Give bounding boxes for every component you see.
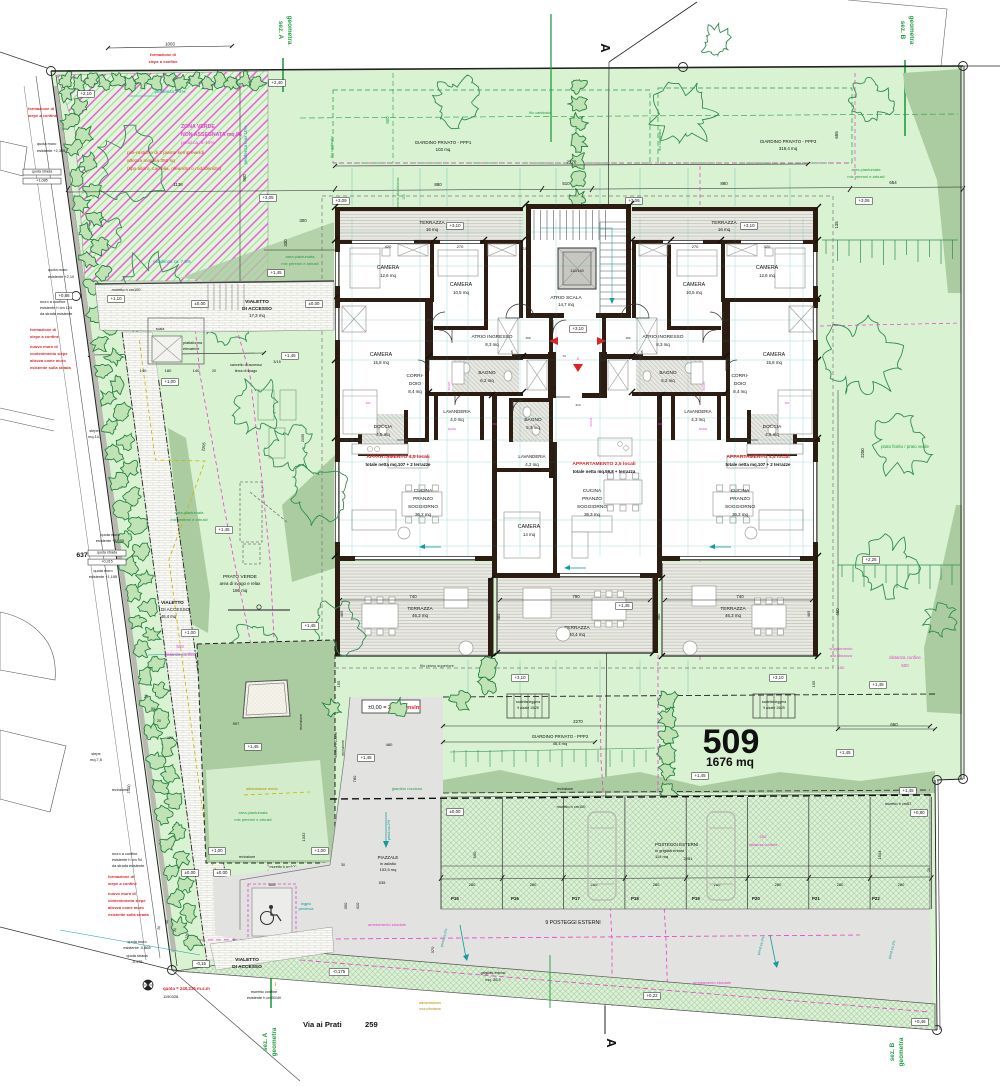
svg-text:535: 535	[379, 880, 386, 885]
svg-text:CUCINA: CUCINA	[731, 488, 750, 494]
svg-text:+0,86: +0,86	[58, 293, 70, 298]
svg-text:filo cantinato: filo cantinato	[529, 111, 551, 115]
svg-text:CORRI-: CORRI-	[731, 373, 748, 379]
svg-text:formazione di: formazione di	[30, 327, 56, 332]
svg-text:DI ACCESSO: DI ACCESSO	[232, 964, 262, 970]
svg-text:2270: 2270	[567, 160, 577, 165]
svg-text:recinzione: recinzione	[112, 788, 128, 792]
svg-text:46,4 mq: 46,4 mq	[161, 614, 177, 619]
svg-text:300: 300	[493, 422, 498, 426]
svg-text:655: 655	[834, 131, 839, 139]
svg-text:P21: P21	[812, 896, 820, 901]
svg-text:2270: 2270	[573, 719, 583, 724]
svg-text:135: 135	[834, 221, 839, 229]
svg-text:DI ACCESSO: DI ACCESSO	[242, 306, 272, 312]
svg-text:319,4 mq: 319,4 mq	[779, 146, 798, 151]
svg-text:GIARDINO PRIVATO - PPP3: GIARDINO PRIVATO - PPP3	[760, 139, 817, 144]
svg-text:16 mq: 16 mq	[426, 227, 439, 232]
svg-text:CAMERA: CAMERA	[370, 352, 393, 358]
svg-text:-0,175: -0,175	[132, 960, 143, 964]
svg-text:500: 500	[760, 834, 767, 839]
svg-text:NON ASSEGNATA mq.86: NON ASSEGNATA mq.86	[181, 132, 242, 138]
svg-text:6,2 mq: 6,2 mq	[661, 378, 675, 383]
svg-text:pini-rustiche di 3 piante semp: pini-rustiche di 3 piante sempreverdi	[127, 150, 204, 156]
svg-text:637: 637	[76, 552, 88, 559]
svg-text:+3,10: +3,10	[514, 675, 526, 680]
svg-text:350: 350	[343, 902, 348, 909]
svg-text:sez. B: sez. B	[889, 1042, 896, 1061]
svg-text:20: 20	[144, 695, 148, 699]
svg-text:120: 120	[167, 736, 173, 740]
svg-text:LAVANDERIA: LAVANDERIA	[518, 454, 545, 459]
svg-text:esistente sulla strada: esistente sulla strada	[108, 912, 149, 917]
svg-text:+3,09: +3,09	[335, 198, 347, 203]
svg-text:SOGGIORNO: SOGGIORNO	[408, 504, 438, 510]
svg-text:±0,00: ±0,00	[217, 870, 229, 875]
svg-text:VIALETTO: VIALETTO	[245, 299, 269, 305]
svg-text:14 mq: 14 mq	[523, 532, 536, 537]
svg-text:(tipo alloro, camelia, oleandr: (tipo alloro, camelia, oleandro o rodode…	[127, 166, 222, 172]
svg-text:-0,175: -0,175	[333, 969, 346, 974]
svg-text:ZONA VERDE: ZONA VERDE	[181, 124, 215, 130]
svg-text:370: 370	[430, 946, 435, 953]
svg-text:in grigliati erbosi: in grigliati erbosi	[655, 848, 684, 853]
svg-text:740: 740	[409, 594, 417, 599]
svg-text:esistente -0,865: esistente -0,865	[123, 946, 150, 950]
svg-text:+1,10: +1,10	[110, 296, 122, 301]
svg-text:+1,00: +1,00	[314, 848, 326, 853]
svg-text:300: 300	[785, 401, 790, 405]
svg-text:36,2 mq: 36,2 mq	[415, 512, 431, 517]
svg-text:P16: P16	[511, 896, 519, 901]
svg-text:POSTEGGI ESTERNI: POSTEGGI ESTERNI	[655, 842, 698, 847]
svg-text:+3,10: +3,10	[743, 223, 755, 228]
svg-text:piattaforma: piattaforma	[183, 341, 203, 345]
svg-text:280: 280	[775, 882, 782, 887]
svg-text:totale netta mq.107 + 2 terraz: totale netta mq.107 + 2 terrazze	[365, 462, 431, 467]
svg-text:46,4 mq: 46,4 mq	[553, 741, 567, 746]
svg-text:+1,085: +1,085	[36, 179, 47, 183]
svg-text:300: 300	[658, 422, 663, 426]
svg-text:114 mq: 114 mq	[655, 854, 668, 859]
svg-text:8,3 mq: 8,3 mq	[485, 342, 499, 347]
svg-text:nuovo muro di: nuovo muro di	[30, 344, 58, 349]
svg-text:-0,15: -0,15	[196, 961, 207, 966]
svg-text:2095: 2095	[301, 434, 305, 442]
svg-text:20: 20	[927, 868, 931, 872]
svg-text:10,5 mq: 10,5 mq	[686, 290, 702, 295]
svg-text:elevatrice: elevatrice	[183, 347, 199, 351]
svg-text:500: 500	[472, 851, 477, 858]
svg-text:3/15: 3/15	[273, 360, 280, 364]
svg-text:scaletta leggera: scaletta leggera	[762, 700, 786, 704]
svg-text:area piantumata: area piantumata	[286, 254, 316, 259]
svg-text:SOGGIORNO: SOGGIORNO	[725, 504, 755, 510]
svg-text:740: 740	[736, 594, 744, 599]
svg-text:880: 880	[434, 182, 442, 187]
svg-text:alimentazione recinto: alimentazione recinto	[246, 787, 278, 791]
svg-text:380: 380	[656, 613, 661, 620]
svg-text:280: 280	[898, 882, 905, 887]
svg-text:2281: 2281	[684, 856, 694, 861]
svg-text:259: 259	[365, 1020, 378, 1029]
svg-text:DI ACCESSO: DI ACCESSO	[161, 607, 190, 612]
svg-text:20: 20	[173, 928, 178, 933]
svg-text:9 alzate 15/25: 9 alzate 15/25	[517, 706, 539, 710]
svg-text:mq.7,5: mq.7,5	[90, 758, 102, 762]
svg-text:180: 180	[165, 368, 172, 373]
svg-text:5,3 mq: 5,3 mq	[526, 425, 540, 430]
svg-text:altezza minima 350 sq: altezza minima 350 sq	[127, 158, 175, 164]
svg-text:siepe a confine: siepe a confine	[28, 113, 58, 118]
svg-text:recinzione: recinzione	[557, 787, 573, 791]
svg-text:quota muro: quota muro	[100, 533, 119, 537]
svg-text:+1,00: +1,00	[184, 630, 196, 635]
svg-text:filo piano superiore: filo piano superiore	[420, 663, 455, 668]
svg-text:grigliati erbosi: grigliati erbosi	[481, 970, 506, 975]
svg-text:CAMERA: CAMERA	[683, 282, 706, 288]
svg-text:PRATO VERDE: PRATO VERDE	[223, 574, 257, 580]
svg-text:+3,10: +3,10	[772, 675, 784, 680]
svg-text:P18: P18	[631, 896, 639, 901]
svg-text:907: 907	[233, 721, 240, 726]
svg-text:+1,45: +1,45	[218, 527, 230, 532]
svg-text:muretto confine: muretto confine	[251, 990, 277, 994]
svg-text:ATRIO INGRESSO: ATRIO INGRESSO	[643, 334, 684, 340]
svg-text:siepe a confine: siepe a confine	[30, 334, 60, 339]
svg-text:213: 213	[575, 403, 580, 407]
svg-text:distanza confine: distanza confine	[164, 652, 196, 657]
svg-text:+3,06: +3,06	[858, 198, 870, 203]
svg-text:geometra: geometra	[908, 16, 915, 45]
svg-text:esistente h cm30/40: esistente h cm30/40	[247, 996, 281, 1000]
svg-text:sez. A: sez. A	[277, 21, 284, 40]
svg-text:20: 20	[212, 369, 216, 373]
svg-text:60/200: 60/200	[699, 427, 708, 431]
svg-text:cancello di accesso: cancello di accesso	[230, 363, 262, 367]
svg-text:mix perenni e arbusti: mix perenni e arbusti	[234, 817, 271, 822]
svg-text:muretto h cm87: muretto h cm87	[885, 802, 912, 806]
svg-text:80/200: 80/200	[702, 381, 706, 390]
svg-text:115: 115	[628, 246, 635, 251]
svg-text:+1,00: +1,00	[164, 379, 176, 384]
svg-text:500: 500	[176, 644, 184, 649]
svg-text:50: 50	[151, 707, 155, 711]
svg-text:pendenza ca. 7,5%: pendenza ca. 7,5%	[153, 259, 191, 264]
svg-text:CAMERA: CAMERA	[450, 282, 473, 288]
svg-text:12,6 mq: 12,6 mq	[759, 273, 775, 278]
svg-text:P15: P15	[451, 896, 459, 901]
svg-text:VIALETTO: VIALETTO	[235, 957, 259, 963]
svg-text:CUCINA: CUCINA	[414, 488, 433, 494]
svg-text:formazione di: formazione di	[28, 106, 54, 111]
svg-text:pend.ca.2%: pend.ca.2%	[387, 819, 391, 840]
svg-text:esistente +1,155: esistente +1,155	[89, 575, 117, 579]
svg-text:+3,10: +3,10	[572, 326, 584, 331]
svg-text:VIALETTO: VIALETTO	[161, 600, 184, 605]
svg-text:pendenza max 10%: pendenza max 10%	[243, 125, 248, 164]
svg-text:muro a confine: muro a confine	[40, 300, 65, 304]
svg-text:prato fiorito / prato verde: prato fiorito / prato verde	[881, 444, 929, 449]
svg-text:280: 280	[469, 882, 476, 887]
svg-text:+1,45: +1,45	[872, 682, 884, 687]
svg-text:8,4 mq: 8,4 mq	[733, 389, 747, 394]
svg-text:155: 155	[811, 680, 816, 687]
svg-text:siepe a confine: siepe a confine	[149, 59, 179, 64]
svg-text:940: 940	[334, 348, 339, 355]
svg-text:muretto h 100cm: muretto h 100cm	[334, 732, 338, 758]
svg-text:±0,00: ±0,00	[309, 301, 321, 306]
svg-text:465: 465	[339, 610, 344, 617]
svg-text:da strada esistente: da strada esistente	[40, 312, 72, 316]
svg-text:scala: scala	[156, 327, 164, 331]
svg-text:CAMERA: CAMERA	[518, 524, 541, 530]
svg-text:960: 960	[242, 174, 247, 182]
svg-text:280: 280	[837, 882, 844, 887]
svg-text:+1,45: +1,45	[360, 755, 372, 760]
svg-text:+1,45: +1,45	[839, 750, 851, 755]
svg-text:+1,45: +1,45	[304, 623, 316, 628]
svg-text:TERRAZZA: TERRAZZA	[407, 606, 433, 612]
svg-text:420: 420	[385, 244, 392, 249]
svg-text:+1,45: +1,45	[902, 788, 914, 793]
svg-text:leggea: leggea	[301, 902, 311, 906]
svg-text:465: 465	[806, 610, 811, 617]
svg-text:esistente h cm 124: esistente h cm 124	[40, 306, 73, 310]
svg-text:+1,00: +1,00	[211, 848, 223, 853]
svg-text:muretto h cm100: muretto h cm100	[112, 288, 141, 292]
svg-text:TERRAZZA: TERRAZZA	[720, 606, 746, 612]
svg-text:420: 420	[764, 244, 771, 249]
svg-text:in asfalto: in asfalto	[380, 861, 397, 866]
svg-text:90/210: 90/210	[589, 417, 593, 426]
svg-text:mq.14,: mq.14,	[88, 435, 100, 439]
svg-text:geometra: geometra	[898, 1037, 905, 1066]
svg-text:+2,40: +2,40	[271, 80, 283, 85]
svg-text:16 mq: 16 mq	[718, 227, 731, 232]
svg-text:P19: P19	[692, 896, 700, 901]
svg-text:A: A	[604, 1038, 619, 1048]
svg-text:74: 74	[562, 354, 566, 358]
svg-text:36,2 mq: 36,2 mq	[732, 512, 748, 517]
svg-text:esistente +2,10: esistente +2,10	[48, 275, 74, 279]
svg-text:formazione di: formazione di	[150, 52, 176, 57]
svg-text:270: 270	[457, 244, 464, 249]
svg-text:giardino roccioso: giardino roccioso	[392, 786, 423, 791]
svg-text:480: 480	[386, 742, 393, 747]
svg-text:quota muro: quota muro	[37, 142, 56, 146]
svg-text:TERRAZZA: TERRAZZA	[419, 220, 445, 226]
svg-text:sez. B: sez. B	[899, 21, 906, 40]
svg-text:+0,46: +0,46	[914, 1019, 926, 1024]
svg-text:+1,45: +1,45	[284, 353, 296, 358]
svg-text:PRANZO: PRANZO	[413, 496, 433, 502]
svg-text:1495: 1495	[334, 407, 339, 417]
svg-text:area di svago e relax: area di svago e relax	[220, 581, 262, 586]
svg-text:36,3 mq: 36,3 mq	[584, 512, 600, 517]
svg-text:280: 280	[530, 882, 537, 887]
svg-text:1003: 1003	[165, 42, 175, 47]
svg-text:+0,22: +0,22	[646, 993, 658, 998]
svg-text:4,9 mq: 4,9 mq	[376, 432, 390, 437]
svg-text:alimentazione: alimentazione	[419, 1001, 441, 1005]
svg-text:500: 500	[385, 116, 390, 124]
svg-text:20: 20	[157, 926, 162, 931]
svg-text:95: 95	[510, 350, 514, 354]
svg-text:1332: 1332	[301, 832, 306, 842]
svg-text:quota strada: quota strada	[97, 551, 118, 555]
svg-text:1504: 1504	[877, 850, 882, 860]
svg-text:280: 280	[653, 882, 660, 887]
svg-text:distanza confine: distanza confine	[889, 655, 921, 660]
svg-text:contenimento siepe: contenimento siepe	[108, 898, 146, 903]
svg-text:mix perenni e arbusti: mix perenni e arbusti	[847, 174, 884, 179]
svg-text:Via ai Prati: Via ai Prati	[303, 1020, 342, 1029]
svg-text:+3,05: +3,05	[262, 195, 274, 200]
svg-text:filo cantinato: filo cantinato	[330, 136, 334, 158]
svg-text:muro a confine: muro a confine	[112, 852, 137, 856]
svg-text:contenimento siepe: contenimento siepe	[30, 351, 68, 356]
svg-text:2250: 2250	[860, 448, 865, 458]
svg-text:area piantumata: area piantumata	[175, 510, 205, 515]
svg-text:50: 50	[165, 920, 170, 925]
svg-text:CAMERA: CAMERA	[763, 352, 786, 358]
svg-text:14,7 mq: 14,7 mq	[558, 302, 574, 307]
svg-text:40,4 mq: 40,4 mq	[569, 632, 585, 637]
svg-text:BAGNO: BAGNO	[659, 370, 677, 376]
svg-text:ATRIO INGRESSO: ATRIO INGRESSO	[472, 334, 513, 340]
svg-text:60/200: 60/200	[448, 427, 457, 431]
svg-text:siepe: siepe	[91, 752, 100, 756]
svg-text:153,5 mq: 153,5 mq	[380, 867, 397, 872]
svg-text:DOIO: DOIO	[409, 381, 422, 387]
svg-text:altezza come muro: altezza come muro	[30, 358, 66, 363]
svg-text:muretto h cm100: muretto h cm100	[557, 805, 586, 809]
svg-text:+3,06: +3,06	[628, 198, 640, 203]
svg-text:esistente +1,555: esistente +1,555	[96, 539, 124, 543]
svg-text:geometra: geometra	[286, 16, 293, 45]
svg-text:4,9 mq: 4,9 mq	[765, 432, 779, 437]
svg-text:300: 300	[299, 218, 307, 223]
svg-text:+0,315: +0,315	[101, 560, 112, 564]
svg-text:SOGGIORNO: SOGGIORNO	[577, 504, 607, 510]
svg-text:500: 500	[901, 663, 909, 668]
svg-text:17,3 mq: 17,3 mq	[249, 313, 265, 318]
svg-text:80/200: 80/200	[447, 381, 451, 390]
svg-text:DOCCIA: DOCCIA	[374, 424, 393, 430]
svg-text:da strada esistente: da strada esistente	[112, 864, 144, 868]
svg-text:P17: P17	[572, 896, 580, 901]
svg-text:esistente h cm 94: esistente h cm 94	[112, 858, 143, 862]
svg-text:altezza come muro: altezza come muro	[108, 905, 144, 910]
svg-text:10,5 mq: 10,5 mq	[453, 290, 469, 295]
svg-text:geometra: geometra	[271, 1027, 278, 1056]
svg-text:quota = 240,235 m.s.m: quota = 240,235 m.s.m	[163, 986, 210, 991]
svg-text:recinzione: recinzione	[239, 855, 255, 859]
svg-text:area piantumata: area piantumata	[852, 167, 882, 172]
svg-text:15,8 mq: 15,8 mq	[373, 360, 389, 365]
svg-text:780: 780	[352, 775, 357, 782]
svg-text:+2,10: +2,10	[80, 91, 92, 96]
svg-text:A: A	[598, 43, 613, 53]
svg-text:12,6 mq: 12,6 mq	[380, 273, 396, 278]
svg-text:85: 85	[553, 386, 557, 390]
svg-text:nuovo muro di: nuovo muro di	[108, 891, 136, 896]
svg-text:150: 150	[838, 665, 845, 670]
svg-text:CORRI-: CORRI-	[406, 373, 423, 379]
svg-text:95: 95	[640, 350, 644, 354]
svg-text:LAVANDERIA: LAVANDERIA	[443, 409, 470, 414]
svg-text:pendenza: pendenza	[299, 907, 314, 911]
svg-text:160: 160	[525, 336, 530, 340]
svg-text:area piantumata: area piantumata	[239, 810, 269, 815]
svg-text:150: 150	[402, 194, 406, 200]
svg-text:quota muro: quota muro	[48, 268, 67, 272]
svg-text:+0,80: +0,80	[913, 810, 925, 815]
svg-text:186 mq: 186 mq	[233, 588, 248, 593]
svg-text:mq. 36,9: mq. 36,9	[485, 977, 501, 982]
svg-text:quota strada: quota strada	[126, 954, 148, 958]
svg-text:quota strada: quota strada	[32, 170, 53, 174]
svg-text:BAGNO: BAGNO	[478, 370, 496, 376]
svg-text:330: 330	[283, 239, 288, 247]
svg-text:totale netta mq.59,8 + terrazz: totale netta mq.59,8 + terrazza	[573, 469, 636, 474]
svg-text:9 POSTEGGI ESTERNI: 9 POSTEGGI ESTERNI	[545, 920, 600, 926]
svg-text:APPARTAMENTO 4,5 locali: APPARTAMENTO 4,5 locali	[726, 454, 790, 460]
svg-text:15,8 mq: 15,8 mq	[766, 360, 782, 365]
svg-text:PRANZO: PRANZO	[582, 496, 602, 502]
svg-text:270: 270	[692, 244, 699, 249]
svg-text:+2,25: +2,25	[865, 557, 877, 562]
svg-text:115: 115	[521, 246, 528, 251]
svg-text:sez. A: sez. A	[262, 1033, 269, 1052]
svg-text:654: 654	[889, 180, 897, 185]
svg-text:PIAZZALE: PIAZZALE	[378, 855, 399, 860]
svg-text:9 alzate 15/25: 9 alzate 15/25	[763, 706, 785, 710]
svg-text:P20: P20	[752, 896, 760, 901]
svg-text:510: 510	[562, 181, 570, 186]
svg-text:mix perenni e arbusti: mix perenni e arbusti	[170, 517, 207, 522]
svg-text:distanza confine: distanza confine	[749, 842, 779, 847]
svg-text:1138: 1138	[173, 182, 183, 187]
svg-text:GIARDINO PRIVATO - PPP2: GIARDINO PRIVATO - PPP2	[532, 734, 589, 739]
svg-text:103 mq: 103 mq	[436, 147, 451, 152]
svg-text:ATRIO SCALA: ATRIO SCALA	[550, 295, 582, 301]
svg-text:140: 140	[140, 368, 147, 373]
svg-text:siepe a confine: siepe a confine	[108, 881, 138, 886]
svg-text:140: 140	[193, 368, 200, 373]
svg-text:790: 790	[572, 594, 580, 599]
svg-text:46,3 mq: 46,3 mq	[725, 613, 741, 618]
svg-text:totale netta mq.107 + 2 terraz: totale netta mq.107 + 2 terrazze	[725, 462, 791, 467]
svg-text:DOIO: DOIO	[734, 381, 747, 387]
svg-text:30: 30	[341, 863, 345, 867]
svg-text:formazione di: formazione di	[108, 874, 134, 879]
svg-text:±0,00: ±0,00	[195, 301, 207, 306]
svg-text:±0,00: ±0,00	[185, 870, 197, 875]
svg-text:LAVANDERIA: LAVANDERIA	[684, 409, 711, 414]
svg-text:160: 160	[625, 336, 630, 340]
svg-text:esistente +2,305: esistente +2,305	[37, 149, 65, 153]
svg-text:+1,45: +1,45	[247, 744, 259, 749]
svg-text:CUCINA: CUCINA	[583, 488, 602, 494]
svg-text:pend.ca. 6-10%: pend.ca. 6-10%	[181, 140, 215, 146]
svg-text:880: 880	[720, 181, 728, 186]
svg-text:PRANZO: PRANZO	[730, 496, 750, 502]
svg-text:155: 155	[336, 680, 341, 687]
svg-text:arredamento stradale: arredamento stradale	[368, 922, 407, 927]
svg-text:500: 500	[269, 882, 276, 887]
